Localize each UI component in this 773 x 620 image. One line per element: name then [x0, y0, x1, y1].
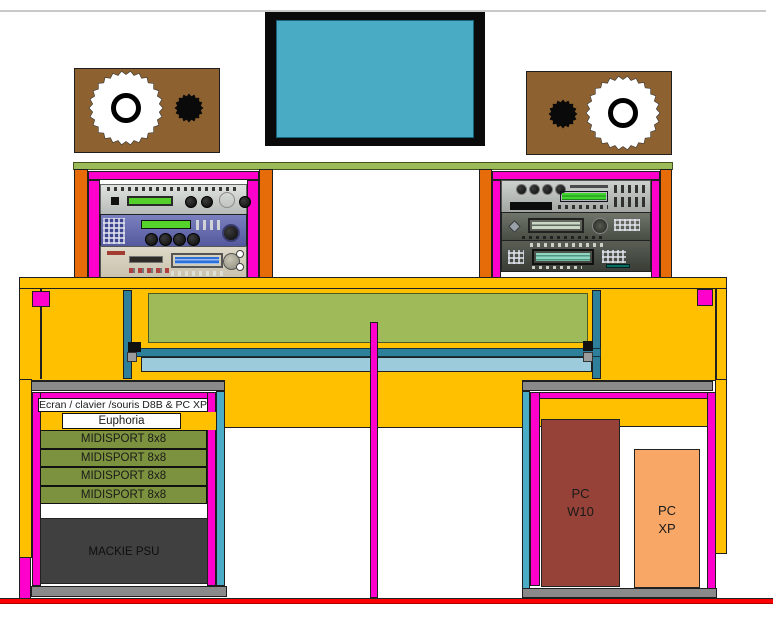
- button-grid: [196, 220, 224, 230]
- knob-icon: [185, 196, 197, 208]
- desk-divider-left: [123, 290, 132, 379]
- rack-rail-right: [651, 180, 660, 278]
- right-bay-frame-top: [530, 392, 716, 399]
- rack-left-gear: [100, 180, 247, 278]
- pc-xp-label: PC XP: [635, 502, 699, 538]
- woofer-ring-icon: [611, 101, 636, 126]
- button-grid: [614, 219, 640, 231]
- speaker-left-drivers: [75, 69, 221, 154]
- button-row: [530, 243, 605, 247]
- right-bay-bottom-shelf: [522, 588, 717, 598]
- logo-circle-icon: [219, 192, 235, 208]
- rack-left: [74, 169, 273, 278]
- floor-baseline: [0, 598, 773, 604]
- midisport-unit: MIDISPORT 8x8: [40, 430, 207, 449]
- desk-bracket-right: [697, 289, 713, 306]
- button-row: [532, 266, 582, 269]
- pc-xp-tower: PC XP: [634, 449, 700, 588]
- rack-unit-fx-processor: [100, 184, 247, 216]
- studio-desk-diagram: Ecran / clavier /souris D8B & PC XP Euph…: [0, 0, 773, 620]
- lcd-display: [560, 191, 608, 202]
- speaker-right-drivers: [527, 72, 673, 156]
- pc-w10-tower: PC W10: [541, 419, 620, 587]
- speaker-left: [74, 68, 220, 153]
- lcd-display: [141, 220, 191, 229]
- right-bay-frame-right: [707, 392, 716, 598]
- side-panel-line: [715, 289, 717, 379]
- button-grid: [614, 185, 646, 193]
- woofer-ring-icon: [114, 96, 139, 121]
- midisport-unit: MIDISPORT 8x8: [40, 449, 207, 468]
- knob-icon: [239, 196, 251, 208]
- brand-text-bar: [570, 185, 608, 188]
- desk-leg-left: [19, 379, 32, 558]
- rack-rail-top: [492, 171, 660, 180]
- desk-divider-right: [592, 290, 601, 379]
- lcd-display: [171, 253, 223, 268]
- right-bay-frame-left: [530, 392, 540, 586]
- rack-unit-synth-module: [100, 214, 247, 248]
- volume-knob-icon: [222, 224, 240, 242]
- center-support-pole: [370, 322, 378, 598]
- rack-post-icon: [259, 169, 273, 278]
- button-grid: [602, 250, 626, 263]
- rack-rail-right: [247, 180, 259, 278]
- button-grid: [508, 250, 524, 264]
- desk-bracket-left: [32, 291, 50, 307]
- speaker-right: [526, 71, 672, 155]
- button-row: [129, 268, 169, 273]
- rack-post-icon: [479, 169, 492, 278]
- power-button: [111, 197, 119, 205]
- midisport-unit: MIDISPORT 8x8: [40, 486, 207, 505]
- knob-icon: [201, 196, 213, 208]
- button-row: [171, 271, 223, 276]
- rack-unit-sound-module: [501, 212, 651, 242]
- logo-badge: [107, 251, 125, 255]
- rack-post-icon: [74, 169, 88, 278]
- tray-endcap-gray: [583, 352, 593, 362]
- knob-icon: [145, 233, 158, 246]
- button-grid: [614, 197, 646, 207]
- tray-endcap-gray: [127, 352, 137, 362]
- lcd-display: [528, 218, 584, 233]
- monitor-screen: [276, 20, 474, 138]
- pc-w10-label: PC W10: [542, 485, 619, 521]
- left-bay-side-strip: [216, 391, 225, 586]
- knob-icon: [529, 184, 540, 195]
- rack-unit-effects: [501, 240, 651, 272]
- right-bay-top-shelf: [522, 381, 713, 391]
- rack-right-gear: [501, 180, 651, 278]
- rack-rail-left: [88, 180, 100, 278]
- screw-row: [107, 187, 240, 191]
- tray-endcap-black: [128, 342, 141, 352]
- floppy-slot-icon: [129, 256, 163, 263]
- knob-icon: [542, 184, 553, 195]
- knob-icon: [173, 233, 186, 246]
- card-slot-icon: [606, 264, 630, 268]
- tweeter-icon: [549, 100, 578, 129]
- rack-rail-left: [492, 180, 501, 278]
- jog-wheel-icon: [592, 218, 608, 234]
- monitor: [265, 12, 485, 146]
- button-row: [522, 236, 602, 239]
- lcd-display: [532, 249, 594, 265]
- rack-unit-sampler: [100, 246, 247, 280]
- lcd-display: [127, 196, 173, 206]
- nav-diamond-icon: [508, 220, 521, 233]
- rack-right: [479, 169, 672, 278]
- midisport-unit: MIDISPORT 8x8: [40, 467, 207, 486]
- keyboard-tray: [141, 357, 592, 372]
- knob-icon: [516, 184, 527, 195]
- left-bay-bottom-shelf: [31, 586, 227, 597]
- desk-leg-right: [715, 379, 727, 554]
- rack-rail-top: [88, 171, 259, 180]
- desk-foot-left: [19, 557, 31, 599]
- tweeter-icon: [175, 94, 204, 123]
- keyboard-tray-rail: [131, 348, 601, 357]
- knob-icon: [159, 233, 172, 246]
- tray-endcap-black: [583, 341, 593, 351]
- button-grid: [103, 218, 125, 244]
- right-bay-side-strip: [522, 391, 530, 590]
- rack-unit-workstation: [501, 180, 651, 214]
- display-window: [510, 202, 552, 210]
- euphoria-unit: Euphoria: [62, 413, 181, 429]
- knob-icon: [236, 250, 244, 258]
- mackie-psu-unit: MACKIE PSU: [40, 518, 208, 584]
- knob-icon: [187, 233, 200, 246]
- left-bay-top-shelf: [31, 381, 225, 391]
- left-bay-shelf-label: Ecran / clavier /souris D8B & PC XP: [38, 398, 208, 412]
- button-row: [558, 205, 608, 209]
- knob-icon: [236, 263, 244, 271]
- rack-post-icon: [660, 169, 672, 278]
- work-surface-pad: [148, 293, 588, 343]
